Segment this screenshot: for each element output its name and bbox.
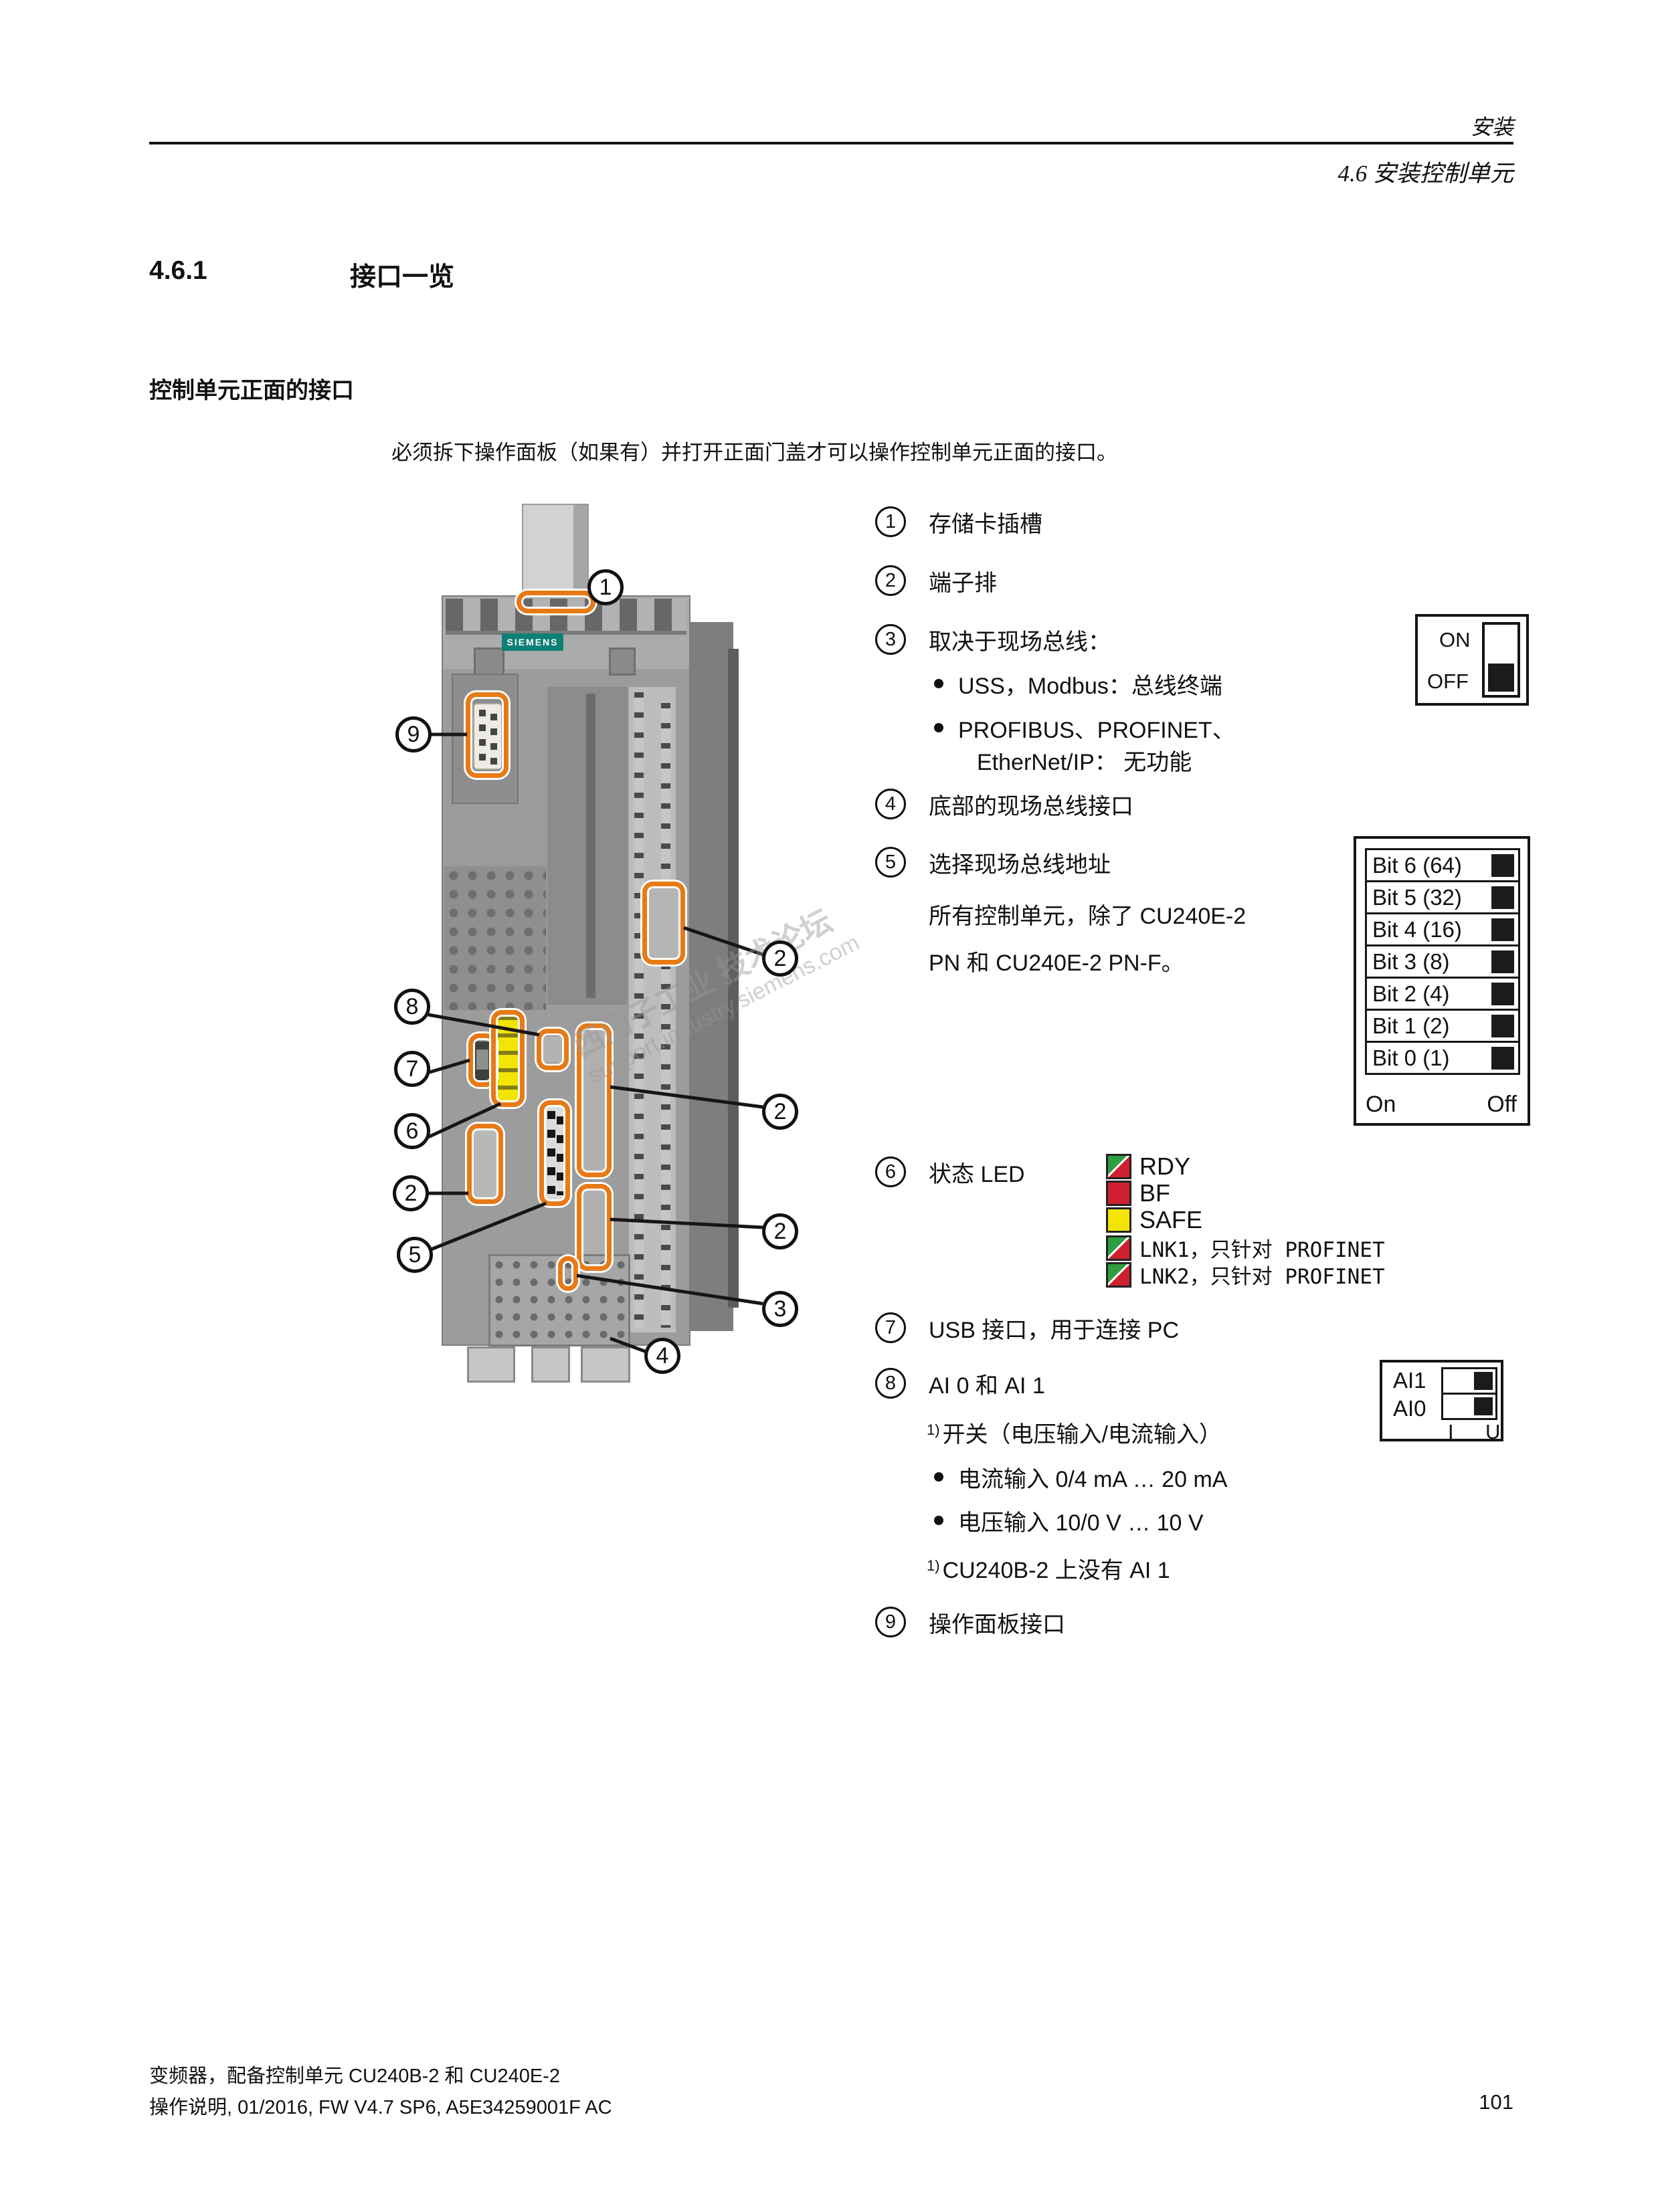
item-9-number: 9: [875, 1607, 906, 1637]
bullet-dot: [934, 1516, 943, 1525]
item-1-number: 1: [875, 506, 906, 537]
bullet-dot: [934, 679, 943, 688]
callout-2-low-right: 2: [762, 1213, 798, 1249]
bit-0-switch: [1491, 1047, 1514, 1070]
bit-5-switch: [1491, 886, 1514, 909]
header-section: 4.6 安装控制单元: [1338, 155, 1513, 189]
callout-7: 7: [394, 1051, 430, 1087]
legend-item-8: 8AI 0 和 AI 1: [875, 1368, 1045, 1399]
bit-row-6: Bit 6 (64): [1365, 848, 1520, 882]
item-1-text: 存储卡插槽: [929, 506, 1042, 538]
item-5-text: 选择现场总线地址: [929, 846, 1111, 879]
ai-i-label: I: [1448, 1420, 1454, 1444]
legend-item-3: 3取决于现场总线：: [875, 624, 1111, 655]
item-2-number: 2: [875, 565, 906, 596]
ai0-knob-u: [1474, 1397, 1493, 1415]
page-number: 101: [1479, 2090, 1513, 2114]
legend-item-7: 7USB 接口，用于连接 PC: [875, 1312, 1179, 1343]
legend-item-1: 1存储卡插槽: [875, 506, 1042, 537]
bit-row-0: Bit 0 (1): [1365, 1041, 1520, 1075]
manual-page: 安装 4.6 安装控制单元 4.6.1 接口一览 控制单元正面的接口 必须拆下操…: [0, 0, 1660, 2212]
led-bf-swatch: [1106, 1181, 1131, 1206]
footnote: 1)CU240B-2 上没有 AI 1: [927, 1552, 1170, 1585]
bit-row-2: Bit 2 (4): [1365, 977, 1520, 1011]
item-6-number: 6: [875, 1157, 906, 1187]
ai0-switch-row: [1441, 1393, 1497, 1420]
led-safe-swatch: [1106, 1207, 1131, 1233]
item-7-number: 7: [875, 1312, 906, 1343]
callout-1: 1: [587, 569, 624, 605]
bit-4-switch: [1491, 918, 1514, 941]
intro-paragraph: 必须拆下操作面板（如果有）并打开正面门盖才可以操作控制单元正面的接口。: [391, 435, 1117, 466]
item-2-text: 端子排: [929, 565, 997, 597]
item-9-text: 操作面板接口: [929, 1606, 1065, 1639]
item-4-text: 底部的现场总线接口: [929, 788, 1133, 821]
subsection-heading: 控制单元正面的接口: [149, 372, 354, 405]
footnote-marker: 1): [927, 1557, 940, 1574]
bit-3-switch: [1491, 950, 1514, 973]
bit-row-5: Bit 5 (32): [1365, 880, 1520, 914]
analog-input-switch: AI1 AI0 I U: [1380, 1360, 1503, 1441]
item-3-bullet-2: PROFIBUS、PROFINET、: [934, 712, 1235, 743]
bit-row-1: Bit 1 (2): [1365, 1009, 1520, 1043]
bit-row-3: Bit 3 (8): [1365, 944, 1520, 979]
control-unit-illustration: SIEMENS: [388, 492, 870, 1401]
item-8-bullet-2: 电压输入 10/0 V … 10 V: [934, 1505, 1204, 1536]
item-7-text: USB 接口，用于连接 PC: [929, 1312, 1179, 1344]
off-label: OFF: [1427, 670, 1469, 694]
item-3-number: 3: [875, 624, 906, 655]
callout-2-top-right: 2: [762, 940, 798, 977]
callout-2-mid-right: 2: [762, 1094, 798, 1130]
callout-9: 9: [395, 716, 432, 752]
legend-item-2: 2端子排: [875, 565, 997, 596]
bus-address-switch-table: Bit 6 (64) Bit 5 (32) Bit 4 (16) Bit 3 (…: [1354, 836, 1530, 1126]
item-3-text: 取决于现场总线：: [929, 623, 1111, 656]
callout-leader-lines: [388, 492, 870, 1401]
ai1-knob-u: [1474, 1372, 1493, 1390]
item-8-text: AI 0 和 AI 1: [929, 1367, 1045, 1400]
section-title: 接口一览: [350, 256, 454, 294]
item-8-switch-note: 1)开关（电压输入/电流输入）: [927, 1416, 1222, 1449]
bullet-dot: [934, 723, 943, 732]
callout-5: 5: [397, 1237, 433, 1273]
callout-2-left: 2: [393, 1175, 429, 1211]
led-lnk2: LNK2，只针对 PROFINET: [1106, 1260, 1385, 1290]
led-safe: SAFE: [1106, 1206, 1202, 1234]
bits-off-label: Off: [1487, 1092, 1517, 1118]
led-rdy-swatch: [1106, 1154, 1131, 1179]
legend-item-9: 9操作面板接口: [875, 1607, 1065, 1637]
item-8-bullet-1: 电流输入 0/4 mA … 20 mA: [934, 1462, 1227, 1492]
footer-line2: 操作说明, 01/2016, FW V4.7 SP6, A5E34259001F…: [149, 2092, 612, 2120]
bits-on-label: On: [1366, 1092, 1396, 1118]
bit-rows: Bit 6 (64) Bit 5 (32) Bit 4 (16) Bit 3 (…: [1365, 848, 1520, 1075]
ai-u-label: U: [1485, 1420, 1500, 1444]
on-label: ON: [1439, 628, 1471, 652]
switch-knob-off: [1488, 664, 1514, 692]
item-6-text: 状态 LED: [929, 1156, 1025, 1189]
led-lnk2-swatch: [1106, 1262, 1131, 1288]
callout-4: 4: [644, 1338, 680, 1374]
legend-item-5: 5选择现场总线地址: [875, 847, 1111, 878]
footer-line1: 变频器，配备控制单元 CU240B-2 和 CU240E-2: [149, 2060, 560, 2088]
bit-2-switch: [1491, 983, 1514, 1005]
section-number: 4.6.1: [149, 256, 207, 286]
item-3-bullet-2-cont: EtherNet/IP： 无功能: [977, 744, 1192, 777]
ai0-label: AI0: [1393, 1396, 1426, 1421]
item-8-number: 8: [875, 1368, 906, 1399]
callout-6: 6: [394, 1113, 430, 1149]
callout-8: 8: [394, 989, 430, 1025]
item-4-number: 4: [875, 789, 906, 819]
bus-terminator-switch: ON OFF: [1415, 614, 1529, 706]
item-5-note-line1: 所有控制单元，除了 CU240E-2: [929, 898, 1246, 930]
led-lnk1-swatch: [1106, 1235, 1131, 1261]
ai1-label: AI1: [1393, 1368, 1426, 1393]
footnote-marker: 1): [927, 1421, 940, 1438]
led-bf: BF: [1106, 1179, 1170, 1207]
switch-channel: [1482, 622, 1520, 698]
bit-6-switch: [1491, 854, 1514, 877]
ai1-switch-row: [1441, 1367, 1497, 1395]
bit-1-switch: [1491, 1015, 1514, 1037]
callout-3: 3: [762, 1291, 798, 1327]
item-5-number: 5: [875, 847, 906, 878]
legend-item-4: 4底部的现场总线接口: [875, 789, 1133, 819]
item-5-note-line2: PN 和 CU240E-2 PN-F。: [929, 944, 1184, 977]
header-chapter: 安装: [1471, 110, 1513, 141]
led-rdy: RDY: [1106, 1152, 1190, 1181]
led-lnk1: LNK1，只针对 PROFINET: [1106, 1233, 1385, 1263]
legend-item-6: 6状态 LED: [875, 1157, 1025, 1187]
header-rule: [149, 142, 1513, 144]
item-3-bullet-1: USS，Modbus：总线终端: [934, 668, 1222, 699]
bit-row-4: Bit 4 (16): [1365, 912, 1520, 946]
ai-switch-rows: [1441, 1367, 1497, 1421]
bullet-dot: [934, 1472, 943, 1482]
